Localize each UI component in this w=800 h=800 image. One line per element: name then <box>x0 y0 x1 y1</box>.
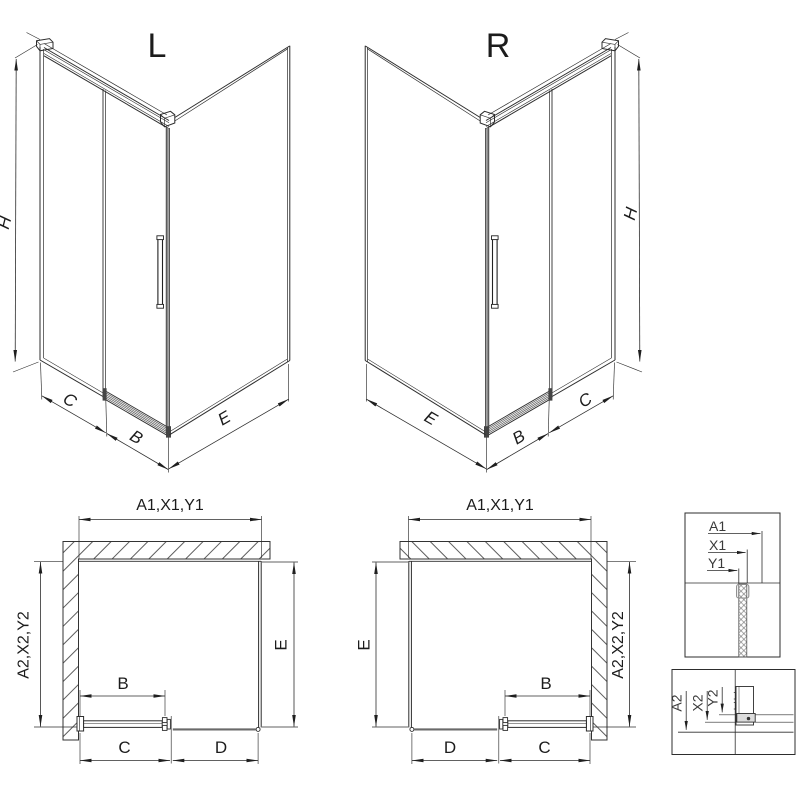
plan-left-dim-c: C <box>118 738 130 757</box>
drawing-canvas: L H C B E R H C B E A1,X1,Y1 A2,X2,Y2 E … <box>0 0 800 800</box>
dim-label-e-left: E <box>215 407 235 429</box>
iso-right-title: R <box>486 27 511 65</box>
dim-label-h-left: H <box>0 214 16 231</box>
plan-left-dim-d: D <box>215 738 227 757</box>
detail-top-label-a1: A1 <box>709 518 726 534</box>
dim-label-b-right: B <box>509 426 528 448</box>
detail-bottom-label-a2: A2 <box>669 694 685 711</box>
detail-top-label-y1: Y1 <box>708 555 725 571</box>
plan-view-right-geometry <box>372 516 636 764</box>
detail-top-profile: A1 X1 Y1 <box>685 513 780 657</box>
plan-left-dim-e: E <box>272 639 291 650</box>
plan-right-dim-right: A2,X2,Y2 <box>610 611 627 679</box>
detail-top-label-x1: X1 <box>709 537 726 553</box>
plan-left-dim-b: B <box>117 674 128 693</box>
plan-left-dim-top: A1,X1,Y1 <box>136 497 204 514</box>
plan-left-labels: A1,X1,Y1 A2,X2,Y2 E B C D <box>16 497 291 757</box>
plan-right-dim-c: C <box>538 738 550 757</box>
plan-right-dim-top: A1,X1,Y1 <box>466 497 534 514</box>
plan-right-dim-b: B <box>540 674 551 693</box>
dim-label-c-left: C <box>60 389 81 412</box>
dim-label-b-left: B <box>127 426 146 448</box>
detail-bottom-label-x2: X2 <box>690 694 706 711</box>
plan-right-dim-e: E <box>355 639 374 650</box>
plan-view-left-geometry <box>34 516 298 764</box>
dim-label-e-right: E <box>421 407 441 429</box>
dim-label-c-right: C <box>575 389 596 412</box>
plan-left-dim-left: A2,X2,Y2 <box>16 611 33 679</box>
iso-view-right-geometry <box>365 33 642 473</box>
iso-view-left-geometry <box>13 33 290 473</box>
detail-bottom-label-y2: Y2 <box>705 689 721 706</box>
dim-label-h-right: H <box>620 205 642 222</box>
iso-left-title: L <box>148 27 167 65</box>
plan-right-dim-d: D <box>444 738 456 757</box>
detail-bottom-profile: A2 X2 Y2 <box>669 670 796 755</box>
shower-enclosure-technical-drawing: L H C B E R H C B E A1,X1,Y1 A2,X2,Y2 E … <box>0 0 800 800</box>
